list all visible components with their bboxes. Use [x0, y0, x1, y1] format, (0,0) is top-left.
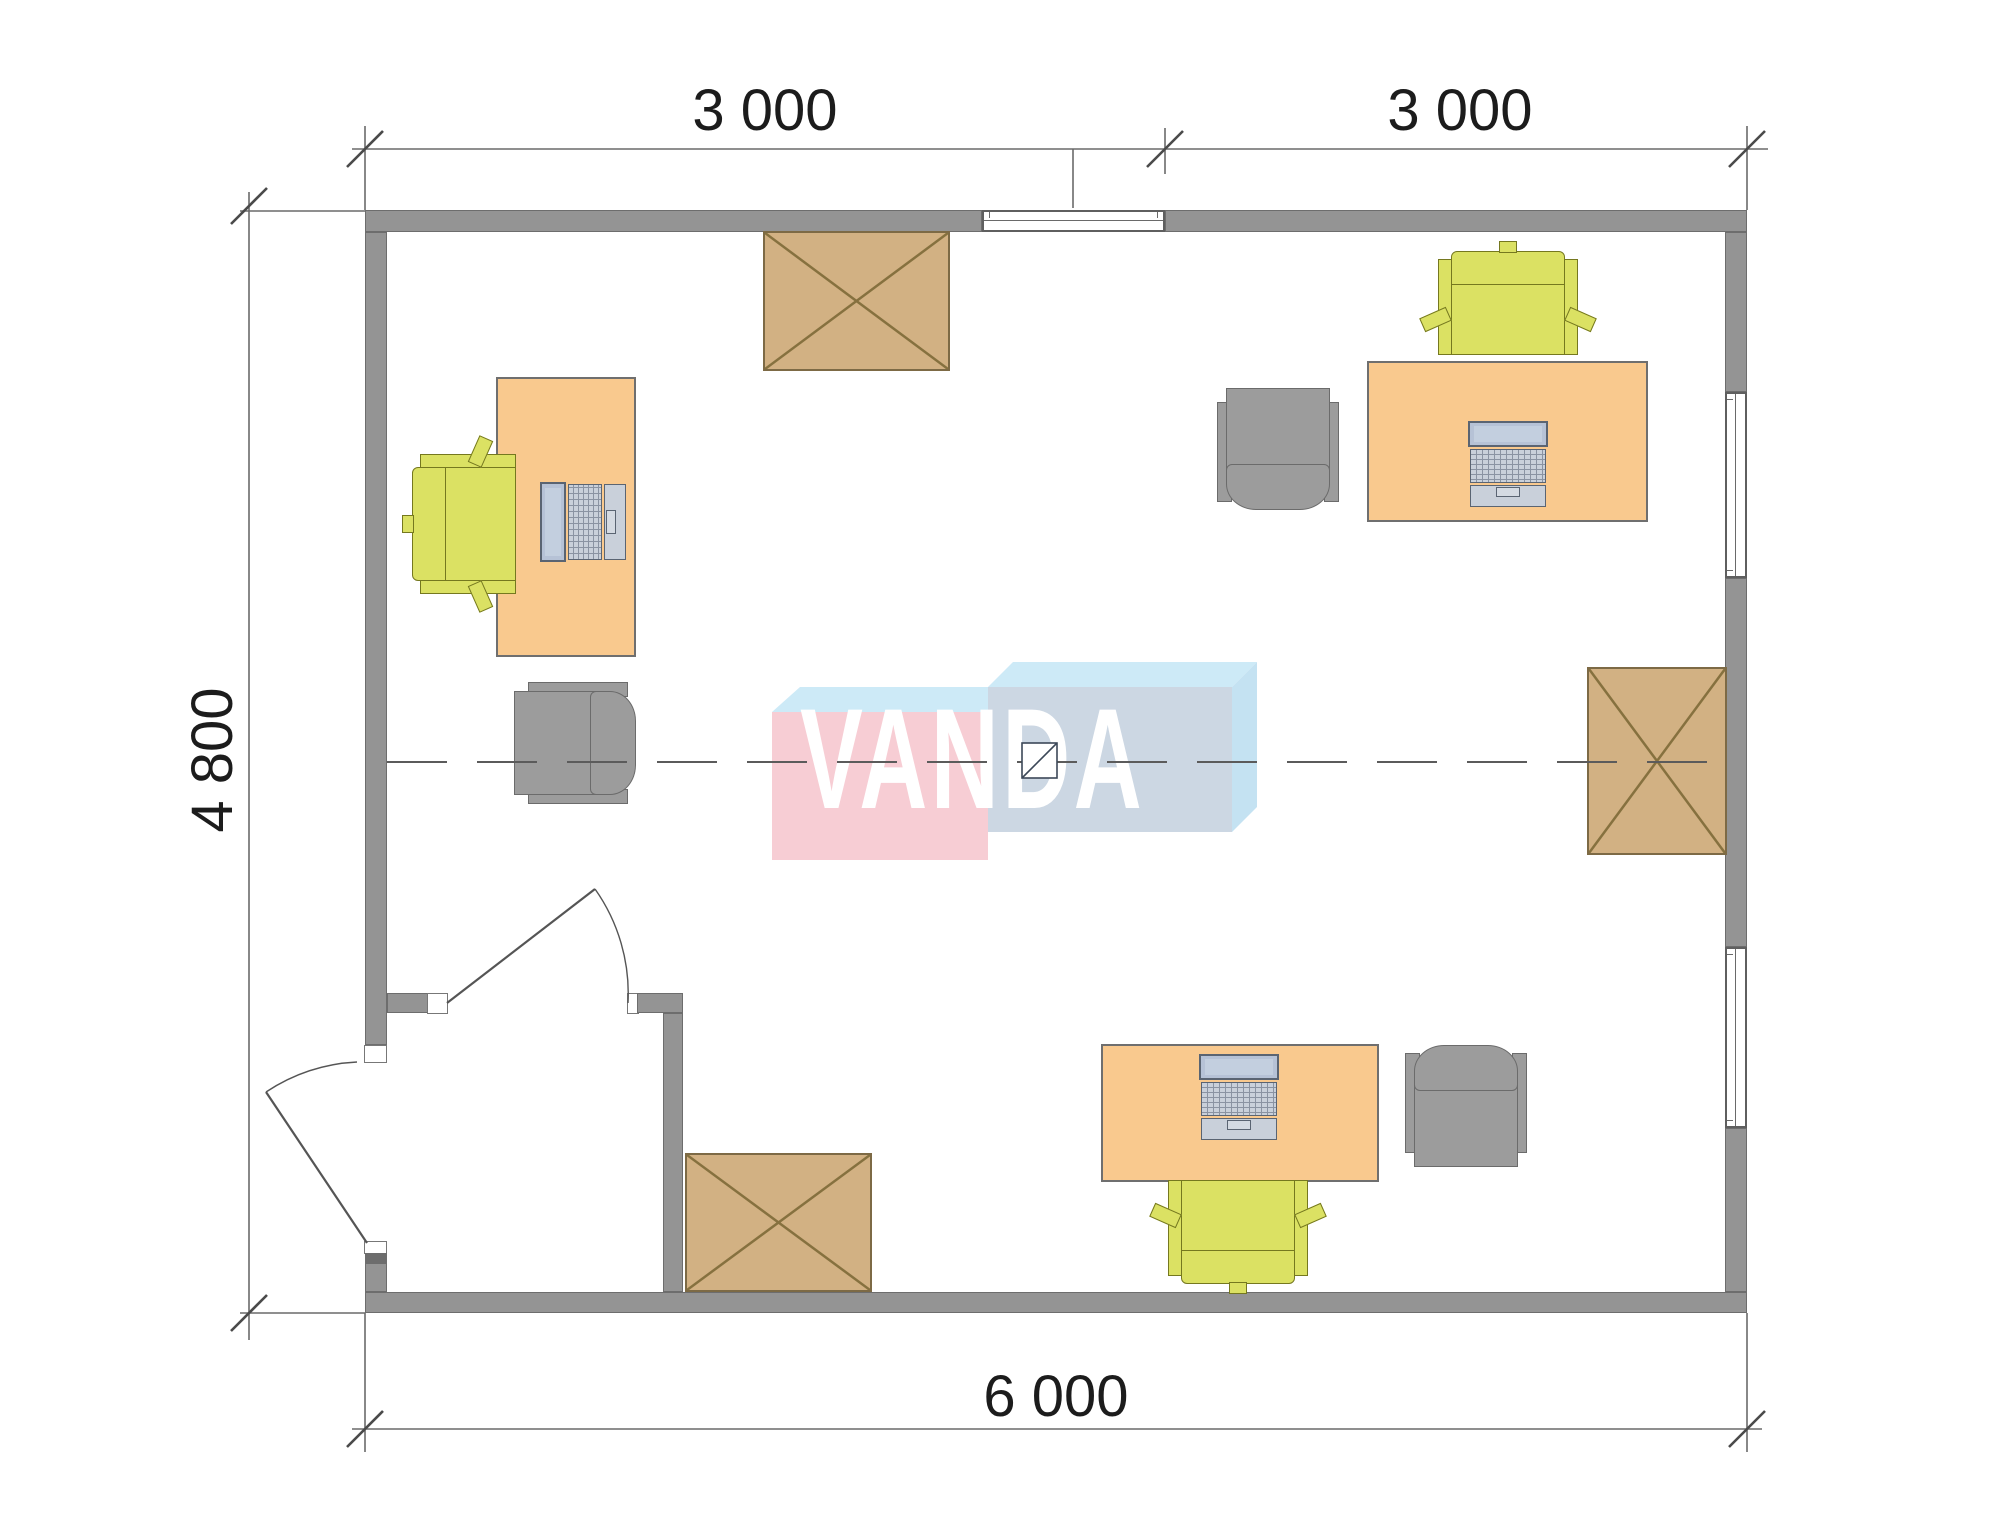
armchair-top-right [1217, 388, 1339, 510]
logo-blue-block-side [1232, 662, 1257, 832]
laptop-keyboard [568, 484, 602, 560]
laptop-screen [540, 482, 566, 562]
storage-cabinet-top [763, 231, 950, 371]
floor-plan-canvas: VANDA [0, 0, 2000, 1520]
window-frame-cap [1727, 954, 1733, 955]
laptop-trackpad [606, 510, 616, 534]
laptop-keyboard [1201, 1082, 1277, 1116]
window-glass-line [1735, 394, 1736, 576]
wall-top-right-segment [1165, 210, 1747, 232]
window-frame-cap [1727, 570, 1733, 571]
storage-cabinet-right [1587, 667, 1727, 855]
window-frame-cap [1727, 399, 1733, 400]
vanda-logo: VANDA [772, 662, 1257, 860]
wall-right-segment-1 [1725, 232, 1747, 392]
laptop-screen [1468, 421, 1548, 447]
window-top-wall [982, 210, 1165, 232]
dim-label-left: 4 800 [184, 650, 242, 870]
dim-label-top-left: 3 000 [655, 82, 875, 140]
entrance-door [266, 1062, 367, 1243]
dim-label-bottom: 6 000 [946, 1368, 1166, 1426]
laptop-left-desk [540, 482, 628, 562]
window-right-wall-upper [1725, 392, 1747, 578]
task-chair-bottom-right [1168, 1180, 1308, 1292]
window-frame-cap [1727, 1120, 1733, 1121]
door-threshold-stub [365, 1253, 387, 1263]
laptop-keyboard [1470, 449, 1546, 483]
task-chair-left [404, 454, 516, 594]
door-jamb-top [364, 1045, 387, 1063]
wall-left-upper-segment [365, 232, 387, 1045]
partition-stub-left [387, 993, 428, 1013]
window-glass-line [984, 220, 1163, 221]
partition-stub-right [637, 993, 683, 1013]
logo-text: VANDA [800, 688, 1145, 831]
window-glass-line [1735, 949, 1736, 1126]
wall-bottom [365, 1292, 1747, 1313]
cabinet-x-icon [765, 233, 948, 369]
window-frame-cap [1157, 212, 1158, 218]
vestibule-door [447, 889, 628, 1003]
laptop-top-right-desk [1468, 421, 1548, 509]
dim-label-top-right: 3 000 [1350, 82, 1570, 140]
window-frame-cap [989, 212, 990, 218]
cabinet-x-icon [1589, 669, 1725, 853]
laptop-screen [1199, 1054, 1279, 1080]
partition-jamb-left [427, 993, 448, 1014]
wall-right-segment-3 [1725, 1128, 1747, 1292]
wall-top-left-segment [365, 210, 982, 232]
laptop-bottom-right-desk [1199, 1054, 1279, 1142]
armchair-left [514, 682, 636, 804]
cabinet-x-icon [687, 1155, 870, 1290]
window-right-wall-lower [1725, 947, 1747, 1128]
wall-left-lower-segment [365, 1263, 387, 1292]
laptop-trackpad [1496, 487, 1520, 497]
wall-right-segment-2 [1725, 578, 1747, 947]
armchair-bottom-right [1405, 1045, 1527, 1167]
laptop-trackpad [1227, 1120, 1251, 1130]
storage-cabinet-bottom [685, 1153, 872, 1292]
partition-vertical [663, 1013, 683, 1292]
task-chair-top-right [1438, 243, 1578, 355]
